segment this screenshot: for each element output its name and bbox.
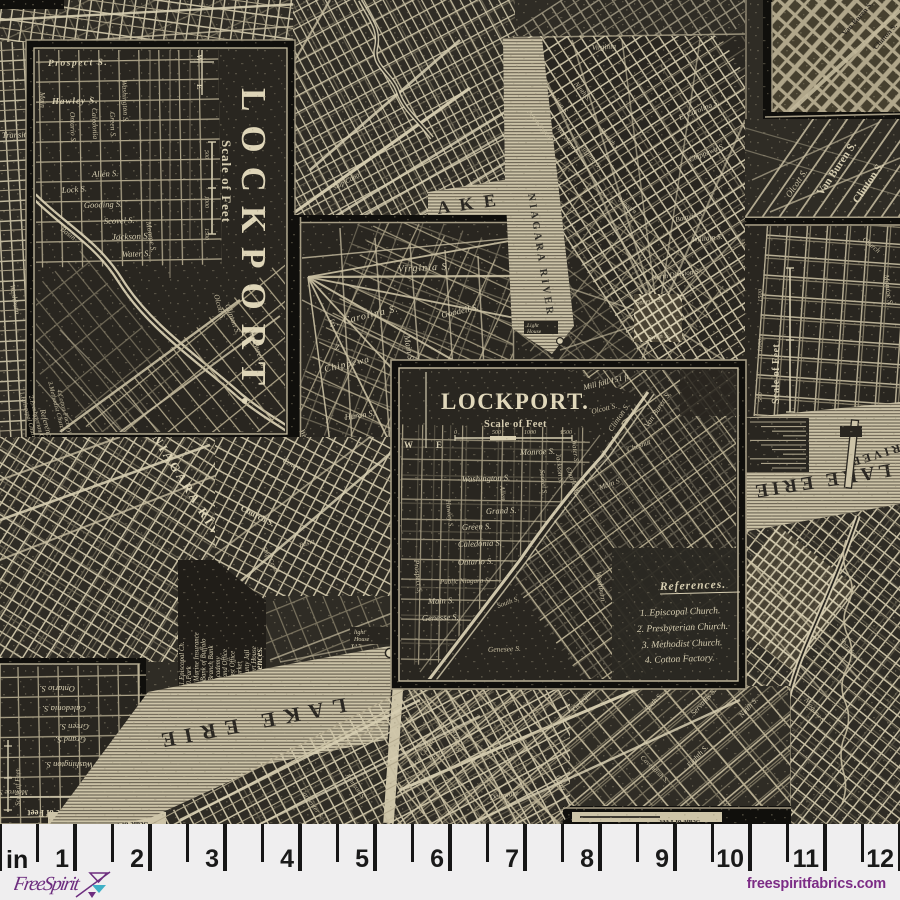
svg-text:FreeSpirit: FreeSpirit: [14, 873, 82, 895]
